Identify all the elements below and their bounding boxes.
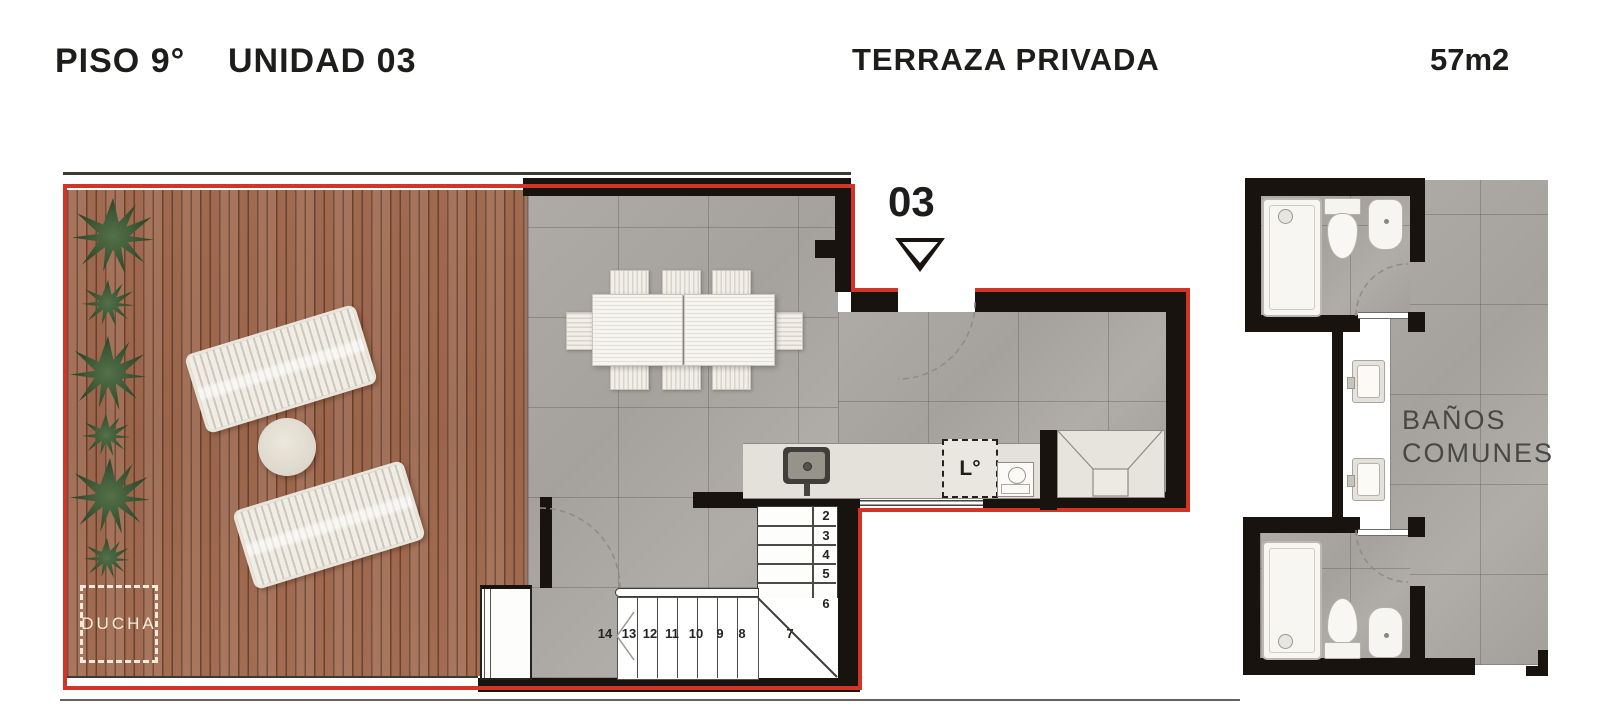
floor-plan-page: PISO 9° UNIDAD 03 TERRAZA PRIVADA 57m2 D… [0,0,1600,722]
stair-winder-diagonal [758,598,837,677]
linework-overlay [0,0,1600,722]
bath-top-door-arc [1356,264,1408,316]
stair-door-arc [540,508,620,588]
kitchen-shower-lines [1058,431,1162,496]
entrance-door-arc [898,302,975,379]
stair-start-arrow-icon [617,612,634,660]
bath-bottom-door-arc [1356,530,1408,582]
